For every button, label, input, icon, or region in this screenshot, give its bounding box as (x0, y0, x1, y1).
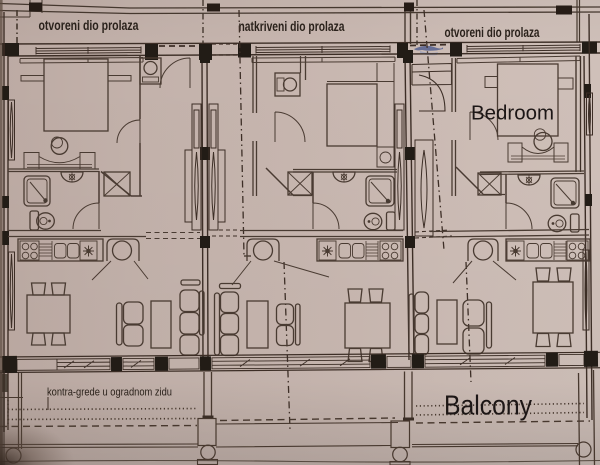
svg-text:Balcony: Balcony (444, 390, 532, 421)
svg-text:otvoreni dio prolaza: otvoreni dio prolaza (39, 17, 139, 33)
svg-text:kontra-grede u ogradnom zidu: kontra-grede u ogradnom zidu (47, 387, 172, 399)
svg-text:otvoreni dio prolaza: otvoreni dio prolaza (445, 25, 540, 40)
svg-text:Bedroom: Bedroom (471, 102, 554, 125)
svg-text:natkriveni dio prolaza: natkriveni dio prolaza (239, 18, 345, 34)
